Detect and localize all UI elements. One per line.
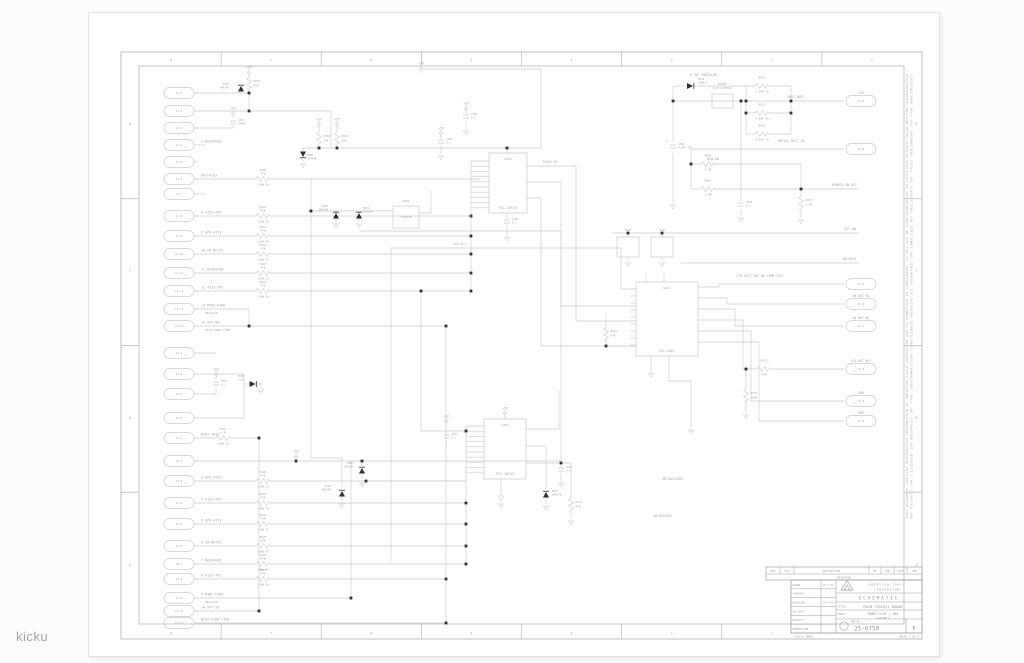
diode-icon (238, 86, 244, 92)
resistor-ref: R504 (324, 134, 331, 138)
approval-label: DRAWN (793, 583, 801, 587)
approval-label: DOC REP (793, 609, 804, 613)
junction-dot (605, 345, 608, 348)
power-arrow-icon (335, 122, 339, 125)
junction-dot (745, 112, 748, 115)
net-label: (LO BAT NC) (850, 359, 871, 363)
resistor-symbol (755, 111, 769, 116)
junction-dot (745, 368, 748, 371)
doc-type: SCHEMATIC (859, 596, 900, 601)
resistor-symbol (256, 271, 270, 276)
connector-pin-label: J1-1 (176, 91, 183, 95)
resistor-symbol (256, 577, 270, 582)
ic-part-number: PIC-16C54 (496, 472, 514, 476)
connector-pin-label: J1-5 (176, 160, 183, 164)
net-label: +5V 0.1 (453, 242, 467, 246)
diode-value: 1N4148 (319, 207, 329, 211)
approval-label: PRODUCTION (793, 627, 809, 631)
resistor-value: 47K (611, 334, 616, 338)
cap-ref: C650 (678, 142, 685, 146)
junction-dot (470, 215, 473, 218)
net-sublabel: ON-5ACH (205, 311, 218, 315)
cap-ref: C206 (512, 217, 519, 221)
resistor-tolerance: 1/8W 5% (257, 257, 269, 261)
revision-letter: F (912, 626, 916, 633)
resistor-symbol (256, 177, 270, 182)
power-arrow-icon (231, 111, 235, 114)
cap-ref: C301 (221, 379, 228, 383)
diode-value: 1N4148 (363, 209, 373, 213)
net-label: 13 MINI-KIRK (201, 303, 226, 307)
cap-value: 0.1 (471, 116, 476, 120)
dwg-label: DWG NO: (851, 621, 861, 624)
cap-value: 4.7UF 35V (678, 146, 692, 150)
connector-pin-label: J3-9 (176, 596, 183, 600)
schematic-drawing: 887766554433221DDCCBBAATHIS DOCUMENT CON… (89, 13, 939, 656)
drawing-number: 25-0750 (854, 626, 880, 633)
resistor-symbol (569, 498, 574, 512)
resistor-symbol (256, 501, 270, 506)
diode-ref: D502 (307, 153, 314, 157)
resistor-symbol (701, 187, 715, 192)
zone-column-label: 5 (470, 632, 472, 636)
cap-value: 0.1 (221, 383, 226, 387)
part-ref: Y602 (659, 228, 666, 232)
diode-value: 1N4148 (307, 156, 317, 160)
zone-row-label: C (129, 269, 131, 273)
proprietary-notice: NO RIGHTS OR LICENSE IN RESPECT OF THE I… (910, 73, 914, 519)
resistor-tolerance: 1/8W 5% (217, 441, 229, 445)
junction-dot (506, 147, 509, 150)
company-name: AMERICAN TOUCH (869, 583, 906, 587)
net-label: 8 4153-TR2 (201, 573, 221, 577)
zone-row-label: C (916, 269, 918, 273)
diode-ref: D500 (238, 374, 245, 378)
net-label: 7 RESERVED (201, 558, 221, 562)
resistor-value: 47K (260, 473, 265, 477)
connector-pin-label: J5-5 (858, 399, 865, 403)
zone-row-label: B (129, 416, 131, 420)
junction-dot (318, 147, 321, 150)
net-label: 10 CB-BUTTS (201, 248, 223, 252)
power-net-label: +5V (502, 407, 508, 411)
junction-dot (627, 232, 630, 235)
resistor-ref: R571 (761, 359, 768, 363)
connector-pin-label: J2-4 (176, 416, 183, 420)
diode-value: 1N4148 (344, 464, 354, 468)
resistor-symbol (604, 327, 609, 341)
power-arrow-icon (419, 66, 423, 69)
junction-dot (350, 597, 353, 600)
resistor-ref: R505 (342, 134, 349, 138)
wire (526, 391, 559, 429)
diode-value: 6.8V (238, 377, 245, 381)
junction-dot (465, 563, 468, 566)
junction-dot (560, 462, 563, 465)
diode-ref: D504 (363, 206, 370, 210)
net-label: (FM 5472 SW7 NO LAMP FUS) (736, 274, 784, 278)
junction-dot (740, 100, 743, 103)
zone-column-label: 6 (370, 632, 372, 636)
junction-dot (445, 622, 448, 625)
connector-pin-label: J1-2 (176, 109, 183, 113)
resistor-value: 2.49K 1% (755, 138, 769, 142)
resistor-ref: R652 (759, 103, 766, 107)
approval-label: RELEASED (793, 600, 806, 604)
resistor-symbol (701, 162, 715, 167)
junction-dot (470, 253, 473, 256)
connector-pin-label: J1-7 (176, 192, 183, 196)
connector-pin-label: J3-5 (176, 522, 183, 526)
cap-value: 0.1 (566, 469, 571, 473)
resistor-symbol (256, 562, 270, 567)
junction-dot (470, 272, 473, 275)
ic-ref: U601 (663, 286, 670, 290)
diode-ref: D505 (325, 484, 332, 488)
zone-column-label: 4 (571, 632, 573, 636)
wire (351, 231, 561, 598)
resistor-ref: R661 (705, 179, 712, 183)
junction-dot (258, 610, 261, 613)
rev-header-cell: APP (912, 569, 917, 573)
connector-pin-label: J3-2 (176, 459, 183, 463)
cap-value: 0.1 (746, 204, 751, 208)
zone-row-label: D (129, 122, 131, 126)
zone-column-label: 1 (871, 59, 873, 63)
wire (419, 191, 431, 213)
zone-column-label: 2 (771, 59, 773, 63)
diode-ref: D503 (322, 204, 329, 208)
resistor-value: 100K (751, 396, 758, 400)
net-label: SW BAT W1 (852, 316, 869, 320)
junction-dot (445, 325, 448, 328)
resistor-value: 2.2M (705, 168, 712, 172)
schematic-sheet: 887766554433221DDCCBBAATHIS DOCUMENT CON… (88, 12, 940, 657)
diode-icon (300, 152, 306, 158)
cap-value: 0.1 (451, 436, 456, 440)
ic-block (489, 153, 527, 213)
resistor-value: 1.00M 1% (755, 90, 769, 94)
resistor-symbol (256, 479, 270, 484)
resistor-symbol (256, 522, 270, 527)
company-name: CONVERSION (874, 588, 900, 592)
junction-dot (470, 235, 473, 238)
wire (526, 166, 636, 321)
wire (698, 331, 844, 401)
resistor-ref: R501 (254, 79, 261, 83)
part-ref: Y601 (625, 228, 632, 232)
diode-ref: D650 (698, 77, 705, 81)
resistor-value: 47K (254, 84, 259, 88)
net-label: 11 RESERVED (201, 267, 223, 271)
cap-ref: C652 (746, 200, 753, 204)
part-ref: U203 (403, 199, 410, 203)
power-arrow-icon (464, 106, 468, 109)
resistor-symbol (335, 132, 340, 146)
cap-ref: C202 (238, 118, 245, 122)
wire (421, 291, 466, 431)
inner-border (139, 66, 904, 624)
net-label: 14 OFF-ON (201, 320, 219, 324)
wire (698, 320, 757, 369)
connector-pin-label: J1-10 (175, 252, 184, 256)
resistor-value: 47K (761, 373, 766, 377)
junction-dot (690, 163, 693, 166)
wire (669, 356, 691, 428)
ic-block (636, 282, 698, 356)
rev-header-cell: ECO (785, 569, 790, 573)
resistor-symbol (256, 234, 270, 239)
resistor-ref: R531 (576, 500, 583, 504)
part-ref: BT650 (718, 82, 727, 86)
diode-icon (359, 468, 365, 474)
wire (526, 198, 636, 346)
approval-date: 10-5-94 (823, 600, 834, 604)
connector-pin-label: J3-3 (176, 479, 183, 483)
power-net-label: +5V (438, 127, 444, 131)
net-label: SB74AC04SC (653, 514, 672, 518)
power-net-label: +5V (213, 368, 219, 372)
connector-pin-label: J3-7 (176, 562, 183, 566)
polarity-plus: + (666, 139, 668, 143)
junction-dot (672, 100, 675, 103)
resistor-value: 10K (324, 139, 329, 143)
resistor-value: 47K (260, 571, 265, 575)
model-name: SMART-SLOT / 485 (868, 612, 899, 616)
resistor-tolerance: 1/8W 5% (257, 294, 269, 298)
zone-column-label: 8 (170, 632, 172, 636)
connector-pin-label: J1-8 (176, 214, 183, 218)
resistor-value: 47K (260, 265, 265, 269)
resistor-symbol (744, 389, 749, 403)
junction-dot (745, 100, 748, 103)
ic-ref: U202 (504, 157, 511, 161)
cap-ref: C205 (471, 112, 478, 116)
connector-pin-label: J3-8 (176, 577, 183, 581)
junction-dot (258, 437, 261, 440)
resistor-symbol (256, 544, 270, 549)
resistor-value: 1.5K (806, 203, 813, 207)
resistor-symbol (256, 252, 270, 257)
power-net-label: +5V (443, 415, 449, 419)
net-label: VDD (858, 411, 864, 415)
connector-pin-label: J4-B (858, 147, 865, 151)
zone-row-label: A (916, 563, 918, 567)
zone-row-label: D (916, 122, 918, 126)
junction-dot (465, 430, 468, 433)
company-logo-icon (844, 585, 850, 590)
diode-value: 1N5817 (698, 80, 708, 84)
resistor-symbol (755, 132, 769, 137)
net-label: 0.1UF TANTALUM (690, 73, 717, 77)
junction-dot (248, 325, 251, 328)
resistor-tolerance: 1/8W 5% (257, 182, 269, 186)
net-label: VBAT-BATT (787, 95, 804, 99)
diode-value: 1N4148 (220, 85, 230, 89)
resistor-value: 47K (260, 208, 265, 212)
connector-pin-label: J3-6 (176, 544, 183, 548)
net-label: GPI-4153 (201, 173, 217, 177)
model-label: MODEL: (838, 612, 847, 616)
power-arrow-icon (294, 454, 298, 457)
connector-pin-label: J1-6 (176, 177, 183, 181)
resistor-value: 47K (260, 516, 265, 520)
resistor-symbol (799, 196, 804, 210)
wire (311, 179, 342, 487)
power-arrow-icon (247, 70, 251, 73)
net-label: +5V (858, 91, 864, 95)
net-label: BIAS-KIRK-TIME (201, 617, 230, 621)
cap-value: 0.1 (512, 221, 517, 225)
connector-pin-label: J2-1 (176, 351, 183, 355)
diode-value: 1N4148 (552, 492, 562, 496)
approval-stamp-icon (840, 622, 848, 630)
junction-dot (465, 523, 468, 526)
connector-pin-label: J4-A (858, 99, 865, 103)
net-label: OFF-ON (844, 227, 856, 231)
connector-pin-label: J1-13 (175, 307, 184, 311)
power-net-label: +5V (334, 118, 340, 122)
resistor-value: 47K (260, 228, 265, 232)
ic-ref: U402 (501, 423, 508, 427)
power-arrow-icon (439, 131, 443, 134)
connector-pin-label: J5-3 (858, 324, 865, 328)
wire (526, 463, 571, 498)
resistor-value: 47K (260, 171, 265, 175)
ic-block (484, 419, 526, 479)
model-sub: ASSEMBLY (877, 616, 890, 620)
resistor-value: 47K (260, 495, 265, 499)
zone-column-label: 7 (270, 632, 272, 636)
connector-pin-label: J5-2 (858, 302, 865, 306)
resistor-ref: R572 (751, 391, 758, 395)
net-label: 3 GPA-4153 (201, 475, 221, 479)
part-value: CD4070B (401, 215, 412, 219)
net-sublabel: DIST-KIRK-TIME (205, 328, 230, 332)
approval-label: QUALITY (793, 618, 804, 622)
resistor-value: 1.0M (705, 193, 712, 197)
connector-pin-label: J5-4 (858, 367, 865, 371)
junction-dot (790, 100, 793, 103)
connector-pin-label: J1-14 (175, 324, 184, 328)
diode-icon (250, 381, 256, 387)
junction-dot (248, 92, 251, 95)
connector-pin-label: J1-12 (175, 289, 184, 293)
wire (698, 309, 844, 326)
junction-dot (295, 460, 298, 463)
net-label: VDD (858, 391, 864, 395)
zone-column-label: 6 (370, 59, 372, 63)
title-label: TITLE: (838, 605, 847, 609)
rev-header-cell: REV (771, 569, 776, 573)
zone-column-label: 3 (671, 59, 673, 63)
junction-dot (420, 290, 423, 293)
connector-pin-label: J5-6 (858, 419, 865, 423)
zone-column-label: 7 (270, 59, 272, 63)
wire (258, 384, 261, 388)
diode-ref: D501 (223, 82, 230, 86)
net-sublabel: ON-5ACH (205, 600, 218, 604)
resistor-symbol (247, 77, 252, 91)
connector-pin-label: J1-9 (176, 234, 183, 238)
zone-row-label: A (129, 563, 131, 567)
diode-icon (687, 83, 693, 89)
ic-part-number: PIC-16C54 (499, 206, 517, 210)
junction-dot (790, 112, 793, 115)
rev-header-cell: DATE (897, 569, 904, 573)
connector-pin-label: J2-2 (176, 372, 183, 376)
net-label: C-RESERVED (201, 139, 221, 143)
resistor-value: 4.7K (220, 430, 227, 434)
resistor-tolerance: 1/8W 5% (257, 219, 269, 223)
net-label: 4 4153-GPO (201, 497, 221, 501)
zone-column-label: 4 (571, 59, 573, 63)
resistor-symbol (755, 84, 769, 89)
net-label: SW BAT W2 (852, 294, 869, 298)
net-label: SERIAL BATT-IN (778, 139, 805, 143)
crystal-box (651, 237, 673, 257)
junction-dot (465, 502, 468, 505)
connector-pad-icon (499, 495, 503, 499)
approval-date: 10-5-94 (823, 583, 834, 587)
resistor-value: 47K (260, 538, 265, 542)
junction-dot (465, 545, 468, 548)
proprietary-notice: THIS DOCUMENT CONTAINS PROPRIETARY INFOR… (905, 73, 909, 519)
cap-ref: C204 (446, 137, 453, 141)
crystal-box (617, 237, 639, 257)
diode-icon (543, 492, 549, 498)
net-label: 9 GPO-4153 (201, 230, 221, 234)
resistor-ref: R653 (759, 124, 766, 128)
net-label: 8 4153-GPO (201, 210, 221, 214)
net-label: 12 4153-TR2 (201, 285, 223, 289)
ic-part-number: SSI-2661 (659, 349, 675, 353)
power-arrow-icon (214, 372, 218, 375)
resistor-symbol (256, 214, 270, 219)
junction-dot (310, 210, 313, 213)
wire (391, 248, 636, 561)
resistor-ref: R651 (759, 76, 766, 80)
connector-pin-label: J1-11 (175, 271, 184, 275)
resistor-value: 47K (576, 505, 581, 509)
power-net-label: +5V (463, 102, 469, 106)
net-label: R410-74L (543, 160, 558, 164)
junction-dot (361, 460, 364, 463)
wire (698, 342, 844, 421)
resistor-symbol (256, 289, 270, 294)
connector-pin-label: J2-3 (176, 392, 183, 396)
junction-dot (470, 290, 473, 293)
resistor-value: 4.99K 1% (755, 117, 769, 121)
resistor-value: 47K (260, 246, 265, 250)
rev-header-cell: CHK (885, 569, 890, 573)
resistor-ref: R663 (806, 198, 813, 202)
scan-background: 887766554433221DDCCBBAATHIS DOCUMENT CON… (0, 0, 1024, 663)
connector-pin-label: J3-10 (175, 609, 184, 613)
power-net-label: +5V (246, 66, 252, 70)
zone-row-label: B (916, 416, 918, 420)
zone-column-label: 8 (170, 59, 172, 63)
zone-column-label: 5 (470, 59, 472, 63)
net-label: 6 CB-BUTTS (201, 540, 221, 544)
net-label: 14 OFF-5A (201, 605, 219, 609)
wire (698, 298, 844, 304)
zone-column-label: 2 (771, 632, 773, 636)
wire (526, 446, 546, 489)
wire (698, 284, 844, 287)
junction-dot (336, 147, 339, 150)
cap-value: 0.1 (446, 141, 451, 145)
